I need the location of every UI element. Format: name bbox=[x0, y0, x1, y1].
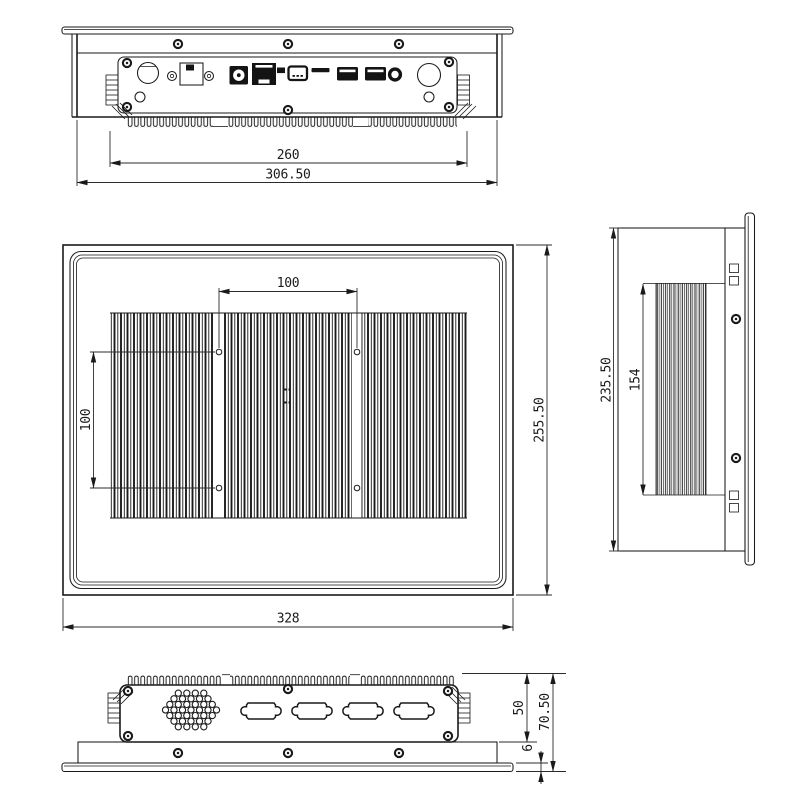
audio-jack bbox=[390, 69, 401, 80]
technical-drawing-page: 260 306.50 bbox=[0, 0, 804, 798]
side-screw bbox=[732, 454, 740, 462]
bottom-view: 50 70.50 6 bbox=[62, 674, 566, 785]
heatsink-teeth bbox=[127, 118, 457, 128]
dim-label-vesa-h: 100 bbox=[277, 276, 300, 291]
dim-label-rear-width: 328 bbox=[277, 612, 300, 627]
dim-label-side-fin-height: 154 bbox=[629, 368, 644, 391]
antenna-hole-left bbox=[138, 63, 159, 84]
dimension-rear-height: 255.50 bbox=[516, 245, 552, 595]
usb-port-2 bbox=[365, 67, 386, 81]
dim-label-top-fins: 260 bbox=[277, 148, 300, 163]
terminal-screw-icon bbox=[168, 72, 177, 81]
vesa-hole bbox=[216, 349, 222, 355]
side-bezel bbox=[745, 213, 755, 565]
heatsink-teeth-bottom bbox=[127, 674, 455, 685]
usb-c-port bbox=[277, 68, 285, 74]
body-screw bbox=[444, 732, 452, 740]
flange-screw bbox=[284, 749, 292, 757]
speaker-grille bbox=[162, 690, 219, 730]
dim-label-side-height: 235.50 bbox=[600, 357, 615, 402]
flange-screw bbox=[174, 749, 182, 757]
serial-port-4 bbox=[394, 703, 434, 719]
heatsink-fin-field bbox=[110, 313, 467, 518]
side-fin-block bbox=[643, 283, 725, 495]
side-view: 235.50 154 bbox=[600, 213, 755, 565]
terminal-screw-icon bbox=[205, 72, 214, 81]
lan-port bbox=[252, 63, 276, 85]
panel-screw bbox=[284, 106, 292, 114]
body-screw bbox=[124, 687, 132, 695]
dc-jack bbox=[230, 66, 249, 85]
terminal-block bbox=[168, 63, 214, 85]
io-ports bbox=[135, 63, 441, 103]
serial-port-2 bbox=[292, 703, 332, 719]
dim-label-top-overall: 306.50 bbox=[265, 168, 310, 183]
serial-port-3 bbox=[343, 703, 383, 719]
front-bezel-edge-bottom bbox=[62, 763, 513, 772]
flange-screw bbox=[284, 40, 292, 48]
small-hole-right bbox=[424, 92, 434, 102]
panel-screw bbox=[123, 59, 131, 67]
serial-port-1 bbox=[241, 703, 281, 719]
usb-port-1 bbox=[337, 67, 358, 81]
dim-label-vesa-v: 100 bbox=[79, 409, 94, 432]
dim-label-bottom-overall: 70.50 bbox=[538, 693, 553, 731]
side-screw bbox=[732, 315, 740, 323]
mount-clip-slots bbox=[730, 264, 739, 512]
top-view: 260 306.50 bbox=[62, 27, 513, 186]
body-screw bbox=[284, 685, 292, 693]
vesa-hole bbox=[216, 485, 222, 491]
flange-screw bbox=[395, 749, 403, 757]
body-screw bbox=[444, 687, 452, 695]
antenna-hole-right bbox=[418, 64, 441, 87]
body-screw bbox=[124, 732, 132, 740]
side-fin-ladder-left-bottom bbox=[108, 693, 120, 723]
side-fin-ladder-right bbox=[458, 75, 470, 105]
io-panel bbox=[118, 57, 457, 113]
dim-label-bottom-body: 50 bbox=[512, 700, 527, 715]
vesa-hole bbox=[354, 349, 360, 355]
dimension-bezel-thickness: 6 bbox=[516, 744, 548, 784]
small-hole-left bbox=[135, 92, 145, 102]
sd-slot bbox=[312, 68, 330, 72]
vesa-hole bbox=[354, 485, 360, 491]
panel-screw bbox=[445, 103, 453, 111]
dimension-260: 260 bbox=[110, 131, 467, 167]
panel-screw bbox=[445, 58, 453, 66]
flange-screw bbox=[174, 40, 182, 48]
flange-screw bbox=[395, 40, 403, 48]
side-fin-ladder-left bbox=[106, 75, 118, 105]
front-bezel-edge bbox=[62, 27, 513, 34]
dim-label-rear-height: 255.50 bbox=[533, 397, 548, 442]
dim-label-bezel-thickness: 6 bbox=[521, 744, 536, 752]
dimension-rear-width: 328 bbox=[63, 598, 513, 631]
dimension-side-fin-height: 154 bbox=[629, 284, 644, 495]
panel-pc-dimension-drawing: 260 306.50 bbox=[0, 0, 804, 798]
displayport bbox=[289, 67, 308, 81]
side-fin-ladder-right-bottom bbox=[458, 693, 470, 723]
rear-view: 100 100 255.50 328 bbox=[63, 245, 552, 631]
